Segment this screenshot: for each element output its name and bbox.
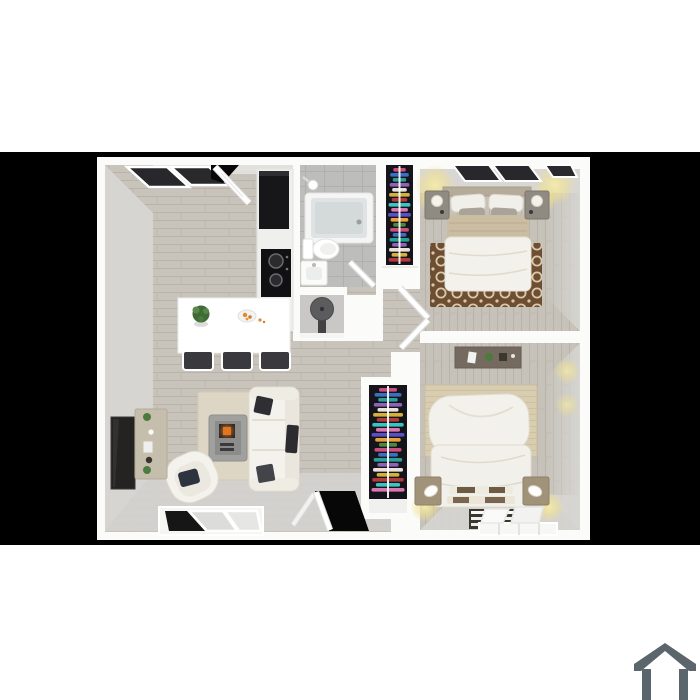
cooktop (261, 249, 291, 297)
floor-plan-rendering (0, 0, 700, 700)
utility-door (300, 333, 344, 338)
sofa-pillow (253, 396, 273, 416)
bathtub (305, 193, 373, 243)
closet2-rail (387, 386, 389, 498)
sofa-pillow (256, 464, 276, 484)
refrigerator (259, 171, 289, 229)
closet1-rail (399, 166, 401, 264)
house-leg-left (642, 669, 651, 700)
living-window (159, 507, 263, 535)
bar-stools (183, 351, 290, 370)
floor-plan (97, 157, 590, 540)
vanity-sink (301, 261, 327, 285)
lamp (532, 196, 543, 207)
wall-glow (554, 358, 580, 384)
headboard (443, 187, 531, 196)
desk-plant (485, 353, 493, 361)
toilet (303, 239, 339, 259)
sofa-throw (285, 425, 299, 454)
lamp (432, 196, 443, 207)
house-leg-right (679, 669, 688, 700)
closet2-floor (369, 499, 407, 513)
dining-table (178, 298, 290, 353)
desk (455, 347, 521, 368)
potted-plant (193, 306, 210, 328)
wall-glow (555, 393, 579, 417)
media-console (135, 409, 167, 479)
closet-2 (361, 377, 415, 519)
screenshot-canvas (0, 0, 700, 700)
paper (467, 351, 476, 363)
bedroom2-bed (428, 393, 531, 507)
closet-1 (380, 157, 420, 289)
duvet (445, 237, 531, 291)
nightstand2-left (410, 477, 441, 522)
sofa (249, 387, 299, 491)
utility-closet (300, 295, 344, 338)
coffee-table (209, 415, 247, 461)
